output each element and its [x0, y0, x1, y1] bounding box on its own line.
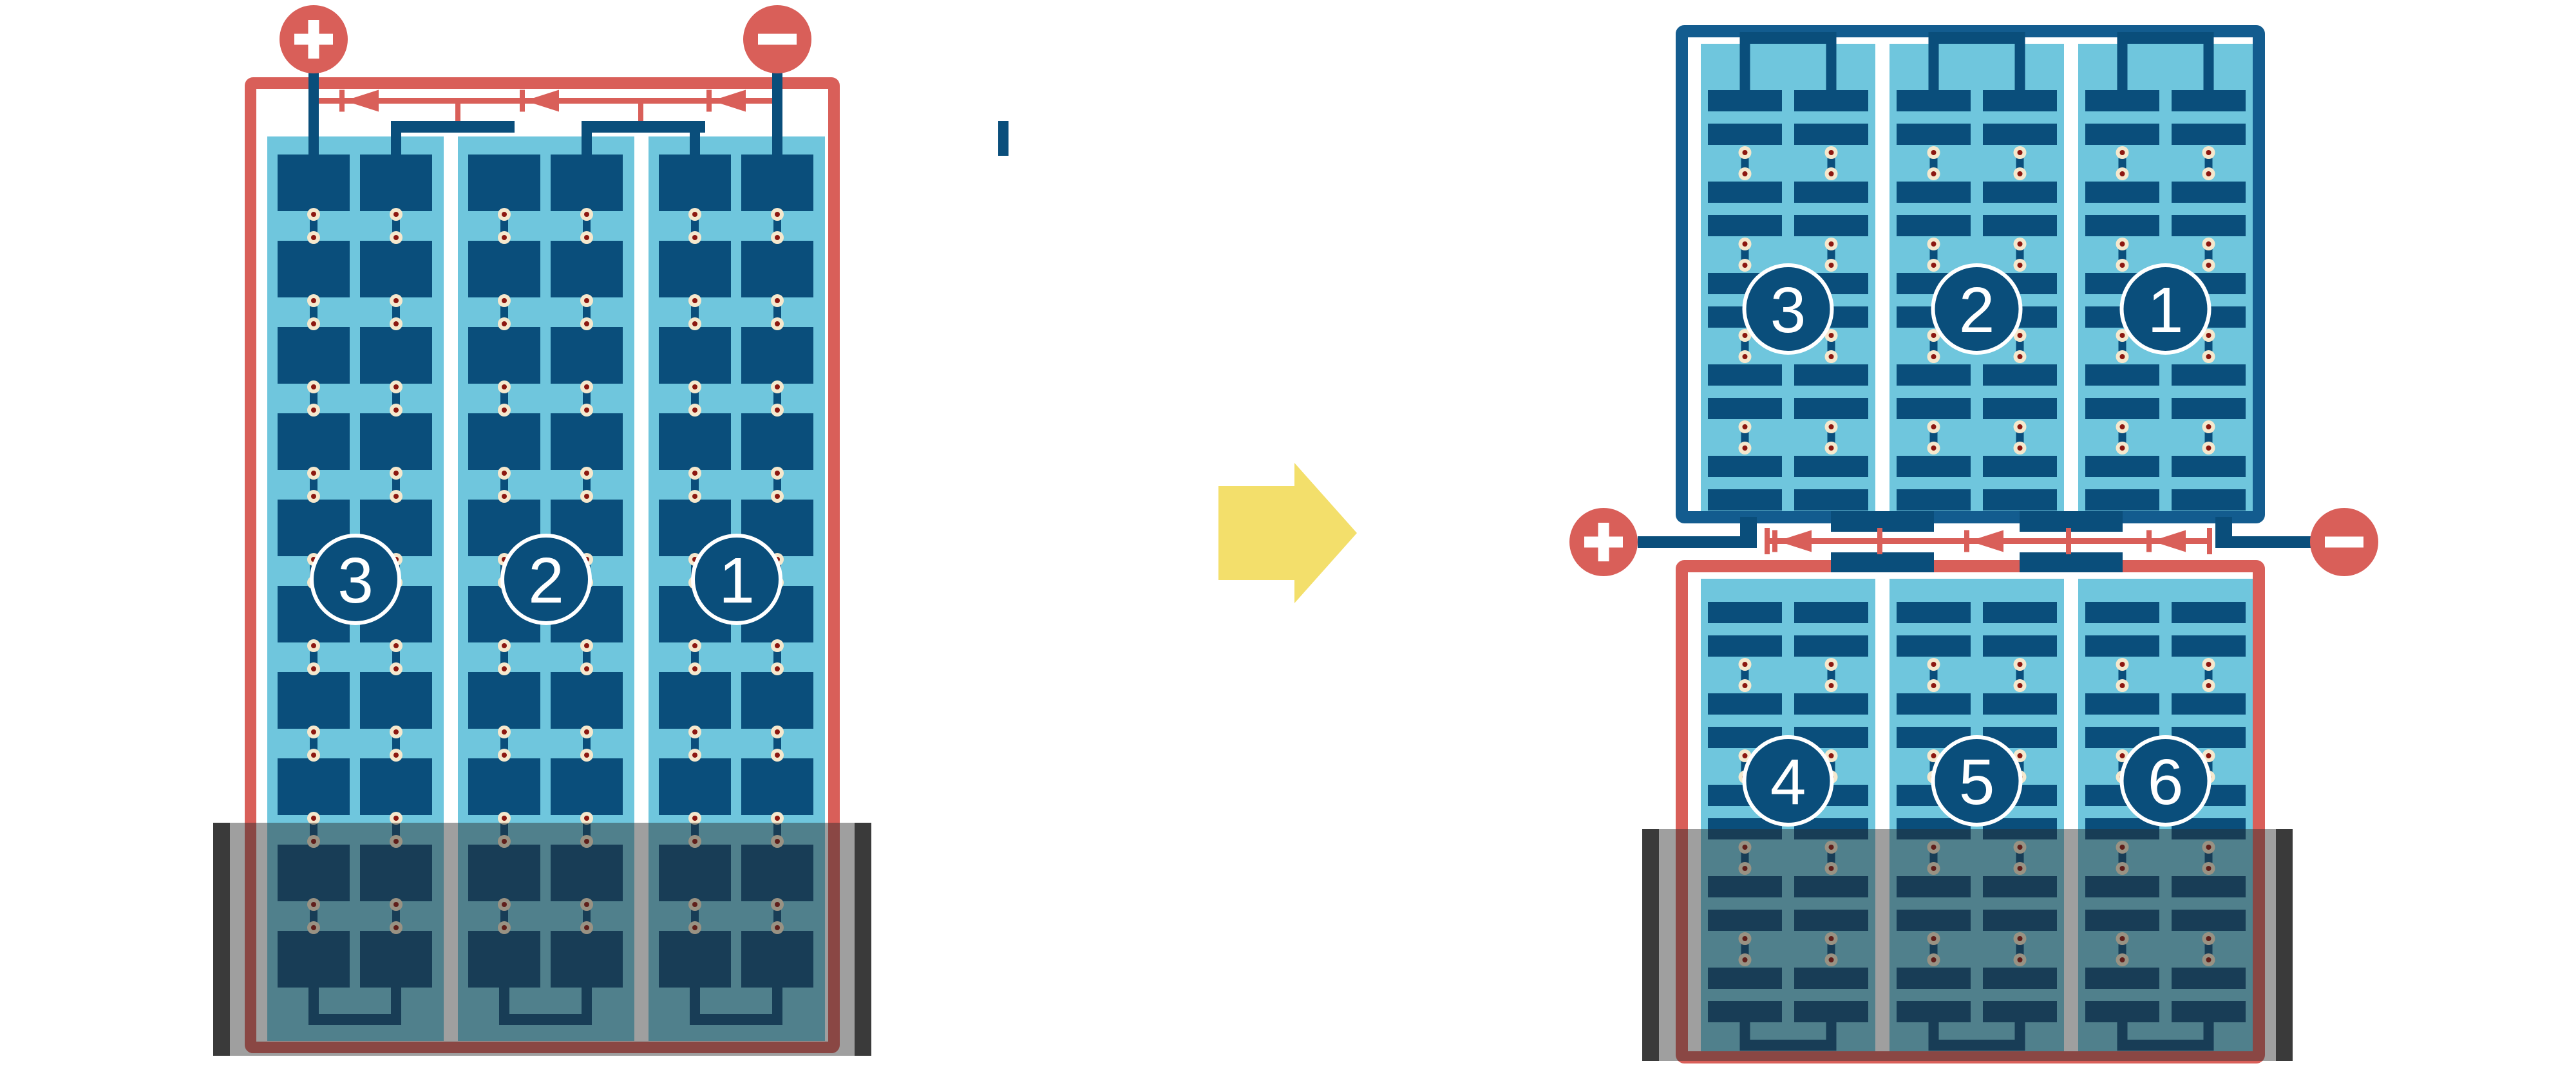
solder-dot-center: [393, 298, 399, 303]
half-cut-solar-cell: [2172, 489, 2246, 511]
solar-cell: [659, 758, 731, 815]
half-cut-solar-cell: [1794, 364, 1868, 386]
half-cut-solar-cell: [1983, 489, 2057, 511]
solder-dot-center: [502, 643, 507, 648]
solder-dot-center: [775, 729, 780, 735]
solder-dot-center: [311, 235, 316, 240]
solder-dot-center: [692, 408, 697, 413]
bypass-diode-cathode: [706, 90, 712, 112]
solder-dot-center: [502, 816, 507, 821]
solder-dot-center: [393, 408, 399, 413]
half-cut-solar-cell: [1708, 693, 1782, 715]
solder-dot-center: [2018, 171, 2023, 176]
half-cut-solar-cell: [2172, 215, 2246, 236]
positive-lead-wire: [308, 64, 319, 158]
solder-dot-center: [2120, 753, 2125, 758]
solder-dot-center: [2206, 263, 2211, 268]
solder-dot-center: [1743, 662, 1748, 667]
solar-cell: [360, 327, 432, 384]
solder-dot-center: [1829, 445, 1834, 451]
bypass-diode-icon: [2152, 530, 2186, 552]
left-string-label-2: 2: [502, 536, 590, 623]
solder-dot-center: [311, 753, 316, 758]
solder-dot-center: [2206, 333, 2211, 338]
negative-lead-wire: [2227, 536, 2314, 548]
bus-junction-stub: [1877, 528, 1882, 554]
solder-dot-center: [502, 494, 507, 499]
solar-cell: [741, 413, 813, 470]
solder-dot-center: [692, 298, 697, 303]
half-cut-solar-cell: [1983, 364, 2057, 386]
left-panel: 3 2 1: [213, 5, 1009, 1056]
solder-dot-center: [1743, 150, 1748, 155]
solder-dot-center: [502, 212, 507, 217]
solder-dot-center: [393, 235, 399, 240]
solar-cell: [741, 327, 813, 384]
solder-dot-center: [1743, 753, 1748, 758]
half-cut-solar-cell: [1983, 182, 2057, 203]
solder-dot-center: [1829, 333, 1834, 338]
shade-shadow-region: [230, 823, 855, 1056]
solder-dot-center: [311, 729, 316, 735]
solder-dot-center: [393, 816, 399, 821]
solder-dot-center: [584, 494, 589, 499]
string-bridge-leg: [998, 121, 1009, 156]
solder-dot-center: [311, 666, 316, 671]
bus-junction-stub: [455, 98, 460, 124]
solar-cell: [741, 672, 813, 729]
half-cut-solar-cell: [2085, 364, 2159, 386]
solder-dot-center: [775, 494, 780, 499]
solar-cell: [278, 327, 350, 384]
solder-dot-center: [1829, 241, 1834, 247]
half-cut-solar-cell: [2085, 602, 2159, 623]
solder-dot-center: [311, 321, 316, 326]
string-loop-bar: [1740, 32, 1837, 44]
solder-dot-center: [584, 729, 589, 735]
solder-dot-center: [2018, 150, 2023, 155]
solder-dot-center: [584, 321, 589, 326]
half-cut-solar-cell: [2172, 364, 2246, 386]
solder-dot-center: [311, 816, 316, 821]
half-cut-solar-cell: [1897, 90, 1971, 111]
solder-dot-center: [311, 408, 316, 413]
solder-dot-center: [584, 235, 589, 240]
half-cut-solar-cell: [1897, 215, 1971, 236]
solar-cell: [468, 155, 540, 211]
half-cut-solar-cell: [1708, 215, 1782, 236]
left-string-label-1: 1: [693, 536, 781, 623]
solder-dot-center: [1931, 354, 1937, 359]
solder-dot-center: [1829, 354, 1834, 359]
bypass-diode-icon: [1969, 530, 2003, 552]
solder-dot-center: [775, 408, 780, 413]
solder-dot-center: [775, 235, 780, 240]
solar-cell: [741, 758, 813, 815]
solar-cell: [278, 155, 350, 211]
half-cut-solar-cell: [1897, 602, 1971, 623]
right-bottom-string-label-6: 6: [2122, 737, 2210, 825]
solder-dot-center: [2120, 683, 2125, 688]
solar-cell: [551, 241, 623, 297]
string-label-text: 3: [337, 545, 374, 617]
solder-dot-center: [1829, 171, 1834, 176]
right-top-string-label-2: 2: [1933, 265, 2021, 353]
left-negative-terminal-icon: [743, 5, 811, 73]
half-cut-solar-cell: [1897, 124, 1971, 145]
half-cut-solar-cell: [1983, 635, 2057, 657]
string-label-text: 1: [719, 545, 755, 617]
solder-dot-center: [1829, 662, 1834, 667]
solder-dot-center: [692, 384, 697, 389]
minus-icon: [2325, 537, 2363, 548]
solder-dot-center: [2018, 445, 2023, 451]
right-top-string-label-1: 1: [2122, 265, 2210, 353]
solder-dot-center: [1931, 150, 1937, 155]
solder-dot-center: [2120, 662, 2125, 667]
solder-dot-center: [1743, 354, 1748, 359]
bypass-diode-cathode: [1772, 530, 1777, 552]
shade-bar-left: [213, 823, 230, 1056]
solder-dot-center: [775, 643, 780, 648]
solar-cell: [278, 758, 350, 815]
solar-cell: [278, 672, 350, 729]
string-label-text: 4: [1770, 746, 1806, 818]
half-cut-solar-cell: [1983, 398, 2057, 419]
solder-dot-center: [775, 298, 780, 303]
bypass-diode-cathode: [520, 90, 525, 112]
shade-bar-right: [2276, 829, 2293, 1061]
half-cut-solar-cell: [1983, 124, 2057, 145]
solder-dot-center: [775, 471, 780, 476]
solder-dot-center: [311, 471, 316, 476]
solder-dot-center: [2018, 333, 2023, 338]
solder-dot-center: [502, 384, 507, 389]
solder-dot-center: [584, 384, 589, 389]
right-shade-overlay: [1642, 829, 2293, 1061]
solder-dot-center: [775, 816, 780, 821]
solder-dot-center: [584, 816, 589, 821]
half-cut-solar-cell: [2085, 693, 2159, 715]
solder-dot-center: [2206, 241, 2211, 247]
solder-dot-center: [2120, 241, 2125, 247]
solder-dot-center: [393, 471, 399, 476]
solder-dot-center: [393, 384, 399, 389]
solder-dot-center: [2206, 662, 2211, 667]
half-cut-solar-cell: [1983, 90, 2057, 111]
solar-cell: [551, 672, 623, 729]
string-loop-bar: [1929, 32, 2025, 44]
solder-dot-center: [1829, 424, 1834, 429]
half-cut-solar-cell: [2085, 90, 2159, 111]
half-cut-solar-cell: [2085, 456, 2159, 477]
solder-dot-center: [1931, 171, 1937, 176]
half-cut-solar-cell: [1983, 456, 2057, 477]
solder-dot-center: [1931, 753, 1937, 758]
half-cut-solar-cell: [1708, 489, 1782, 511]
solder-dot-center: [393, 729, 399, 735]
solar-cell: [468, 672, 540, 729]
diagram-canvas: 3 2 1 3 2: [0, 0, 2576, 1068]
solar-cell: [551, 327, 623, 384]
half-cut-solar-cell: [2085, 635, 2159, 657]
half-cut-solar-cell: [1897, 456, 1971, 477]
bypass-diode-icon: [525, 90, 559, 112]
string-label-text: 6: [2148, 746, 2184, 818]
solder-dot-center: [502, 471, 507, 476]
solar-cell: [551, 413, 623, 470]
bus-junction-stub: [1765, 528, 1770, 554]
solder-dot-center: [692, 471, 697, 476]
solder-dot-center: [584, 666, 589, 671]
right-panel: 3 2 1 4 5 6: [1569, 32, 2378, 1062]
half-cut-solar-cell: [1897, 364, 1971, 386]
solder-dot-center: [1931, 662, 1937, 667]
string-label-text: 3: [1770, 274, 1806, 346]
solder-dot-center: [2120, 263, 2125, 268]
bus-junction-stub: [2207, 528, 2212, 554]
solder-dot-center: [311, 212, 316, 217]
solder-dot-center: [502, 408, 507, 413]
solar-cell: [659, 155, 731, 211]
half-cut-solar-cell: [1897, 489, 1971, 511]
shade-bar-left: [1642, 829, 1659, 1061]
negative-lead-wire: [772, 64, 782, 158]
left-positive-terminal-icon: [279, 5, 348, 73]
bypass-diode-icon: [712, 90, 746, 112]
half-cut-solar-cell: [1708, 124, 1782, 145]
solar-cell: [659, 413, 731, 470]
solder-dot-center: [584, 471, 589, 476]
solder-dot-center: [393, 643, 399, 648]
solar-cell: [360, 241, 432, 297]
solder-dot-center: [775, 321, 780, 326]
solder-dot-center: [393, 212, 399, 217]
solder-dot-center: [2120, 445, 2125, 451]
solar-cell: [551, 155, 623, 211]
half-cut-solar-cell: [2085, 398, 2159, 419]
half-cut-solar-cell: [1794, 398, 1868, 419]
solder-dot-center: [2120, 424, 2125, 429]
solder-dot-center: [502, 753, 507, 758]
shade-shadow-region: [1659, 829, 2276, 1061]
solar-cell: [360, 672, 432, 729]
solder-dot-center: [692, 729, 697, 735]
solder-dot-center: [1743, 424, 1748, 429]
solder-dot-center: [502, 666, 507, 671]
solder-dot-center: [692, 643, 697, 648]
bypass-diode-icon: [345, 90, 379, 112]
half-cut-solar-cell: [1794, 124, 1868, 145]
left-shade-overlay: [213, 823, 871, 1056]
string-loop-bar: [2117, 32, 2214, 44]
string-bridge-leg: [391, 121, 401, 156]
solder-dot-center: [311, 298, 316, 303]
half-cut-solar-cell: [2172, 182, 2246, 203]
string-label-text: 1: [2148, 274, 2184, 346]
solar-cell: [659, 672, 731, 729]
solder-dot-center: [1931, 683, 1937, 688]
half-cut-solar-cell: [1897, 182, 1971, 203]
solder-dot-center: [584, 753, 589, 758]
solar-cell: [278, 241, 350, 297]
solder-dot-center: [584, 408, 589, 413]
right-bottom-string-label-5: 5: [1933, 737, 2021, 825]
solar-cell: [360, 758, 432, 815]
solar-cell: [468, 758, 540, 815]
bypass-diode-icon: [1777, 530, 1812, 552]
solder-dot-center: [775, 384, 780, 389]
half-cut-solar-cell: [1794, 602, 1868, 623]
solder-dot-center: [1743, 445, 1748, 451]
solar-cell: [468, 327, 540, 384]
solder-dot-center: [393, 753, 399, 758]
solder-dot-center: [1743, 263, 1748, 268]
half-cut-solar-cell: [1708, 364, 1782, 386]
solar-cell: [278, 413, 350, 470]
solder-dot-center: [775, 666, 780, 671]
half-cut-solar-cell: [2085, 489, 2159, 511]
half-cut-solar-cell: [1794, 635, 1868, 657]
solder-dot-center: [2206, 150, 2211, 155]
solder-dot-center: [2018, 354, 2023, 359]
half-cut-solar-cell: [1794, 693, 1868, 715]
solder-dot-center: [692, 235, 697, 240]
junction-tab: [2020, 552, 2123, 572]
solder-dot-center: [1829, 683, 1834, 688]
string-label-text: 2: [528, 545, 564, 617]
half-cut-solar-cell: [1794, 215, 1868, 236]
bypass-diode-cathode: [339, 90, 345, 112]
solder-dot-center: [393, 666, 399, 671]
half-cut-solar-cell: [2172, 635, 2246, 657]
solar-cell: [551, 758, 623, 815]
solar-cell: [741, 155, 813, 211]
string-label-text: 2: [1959, 274, 1995, 346]
solder-dot-center: [1743, 241, 1748, 247]
half-cut-solar-cell: [1794, 90, 1868, 111]
solder-dot-center: [775, 212, 780, 217]
solar-cell: [468, 241, 540, 297]
solder-dot-center: [393, 494, 399, 499]
plus-icon: [308, 20, 319, 59]
solder-dot-center: [2206, 354, 2211, 359]
string-label-text: 5: [1959, 746, 1995, 818]
solder-dot-center: [2018, 241, 2023, 247]
solder-dot-center: [2120, 354, 2125, 359]
solder-dot-center: [1829, 263, 1834, 268]
shade-bar-right: [855, 823, 871, 1056]
string-bridge-bar: [582, 121, 705, 133]
solar-cell: [360, 155, 432, 211]
solder-dot-center: [1743, 333, 1748, 338]
right-positive-terminal-icon: [1569, 508, 1638, 576]
half-cut-solar-cell: [1708, 398, 1782, 419]
half-cut-solar-cell: [1983, 215, 2057, 236]
left-string-label-3: 3: [312, 536, 399, 623]
bypass-diode-cathode: [1964, 530, 1969, 552]
solder-dot-center: [502, 298, 507, 303]
half-cut-solar-cell: [1983, 602, 2057, 623]
solder-dot-center: [2120, 150, 2125, 155]
string-bridge-bar: [391, 121, 515, 133]
solder-dot-center: [1931, 445, 1937, 451]
solder-dot-center: [2018, 424, 2023, 429]
half-cut-solar-cell: [2085, 182, 2159, 203]
right-top-string-label-3: 3: [1745, 265, 1832, 353]
solder-dot-center: [2120, 171, 2125, 176]
solder-dot-center: [502, 321, 507, 326]
half-cut-solar-cell: [1708, 635, 1782, 657]
solder-dot-center: [1931, 263, 1937, 268]
solder-dot-center: [1743, 683, 1748, 688]
solder-dot-center: [1829, 753, 1834, 758]
half-cut-solar-cell: [2172, 398, 2246, 419]
solar-panel-wiring-diagram: 3 2 1 3 2: [0, 0, 2576, 1068]
minus-icon: [758, 34, 797, 45]
right-negative-terminal-icon: [2310, 508, 2378, 576]
half-cut-solar-cell: [1897, 398, 1971, 419]
solder-dot-center: [502, 235, 507, 240]
half-cut-solar-cell: [2172, 693, 2246, 715]
bus-junction-stub: [638, 98, 643, 124]
half-cut-solar-cell: [2172, 602, 2246, 623]
solar-cell: [468, 413, 540, 470]
half-cut-solar-cell: [1983, 693, 2057, 715]
half-cut-solar-cell: [1794, 489, 1868, 511]
solder-dot-center: [775, 753, 780, 758]
half-cut-solar-cell: [2085, 215, 2159, 236]
solder-dot-center: [584, 298, 589, 303]
string-bridge-leg: [582, 121, 592, 156]
solder-dot-center: [2206, 171, 2211, 176]
bus-junction-stub: [2066, 528, 2071, 554]
half-cut-solar-cell: [1708, 602, 1782, 623]
solder-dot-center: [692, 666, 697, 671]
solar-cell: [659, 327, 731, 384]
solder-dot-center: [2206, 424, 2211, 429]
solder-dot-center: [311, 494, 316, 499]
solder-dot-center: [1931, 424, 1937, 429]
solder-dot-center: [2018, 683, 2023, 688]
solder-dot-center: [393, 321, 399, 326]
half-cut-solar-cell: [1794, 182, 1868, 203]
half-cut-solar-cell: [2172, 90, 2246, 111]
solder-dot-center: [2206, 445, 2211, 451]
half-cut-solar-cell: [1794, 456, 1868, 477]
half-cut-solar-cell: [1708, 90, 1782, 111]
solder-dot-center: [584, 212, 589, 217]
solder-dot-center: [692, 321, 697, 326]
transform-arrow-icon: [1218, 463, 1357, 603]
solar-cell: [741, 241, 813, 297]
half-cut-solar-cell: [2172, 124, 2246, 145]
solder-dot-center: [692, 816, 697, 821]
solar-cell: [659, 241, 731, 297]
solder-dot-center: [311, 384, 316, 389]
positive-lead-wire: [1638, 536, 1744, 548]
solder-dot-center: [692, 494, 697, 499]
solder-dot-center: [692, 753, 697, 758]
solder-dot-center: [2120, 333, 2125, 338]
string-bridge-leg: [690, 121, 700, 156]
half-cut-solar-cell: [1897, 693, 1971, 715]
solder-dot-center: [1743, 171, 1748, 176]
solder-dot-center: [1829, 150, 1834, 155]
half-cut-solar-cell: [1897, 635, 1971, 657]
solder-dot-center: [2018, 263, 2023, 268]
solder-dot-center: [1931, 241, 1937, 247]
